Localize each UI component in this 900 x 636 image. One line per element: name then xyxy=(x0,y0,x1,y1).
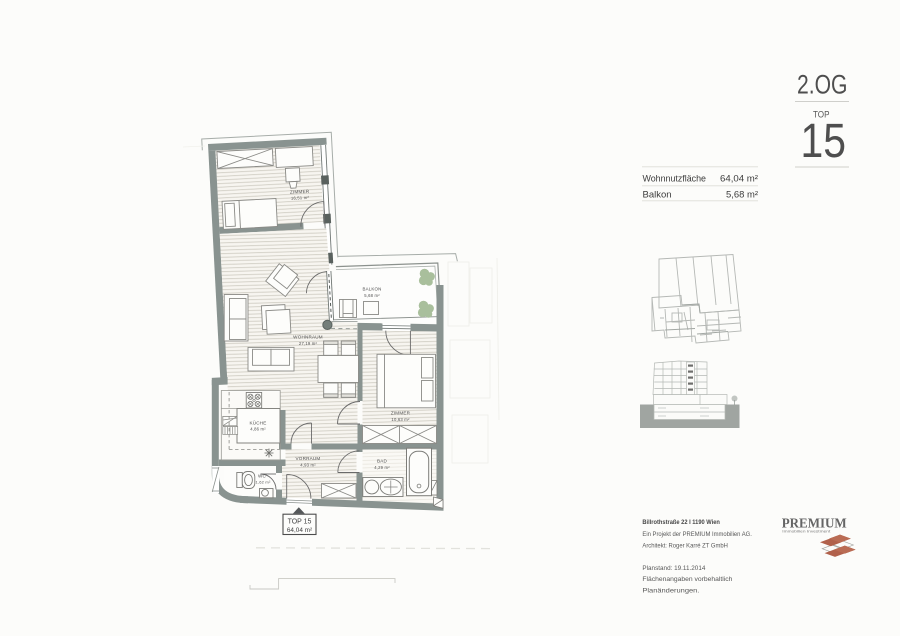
svg-text:27,19 m²: 27,19 m² xyxy=(299,341,318,346)
svg-text:VORRAUM: VORRAUM xyxy=(296,456,321,461)
svg-text:WOHNRAUM: WOHNRAUM xyxy=(293,335,323,340)
svg-text:Architekt: Roger Karré ZT GmbH: Architekt: Roger Karré ZT GmbH xyxy=(642,543,728,550)
svg-text:4,86 m²: 4,86 m² xyxy=(250,427,266,432)
svg-text:Planstand: 19.11.2014: Planstand: 19.11.2014 xyxy=(642,565,705,572)
svg-text:Ein Projekt der PREMIUM Immobi: Ein Projekt der PREMIUM Immobilien AG. xyxy=(642,531,752,538)
svg-text:5,68 m²: 5,68 m² xyxy=(364,293,380,298)
svg-text:TOP 15: TOP 15 xyxy=(288,518,312,525)
svg-text:WC: WC xyxy=(258,474,267,479)
svg-text:15: 15 xyxy=(801,115,847,168)
svg-text:Immobilien Investment: Immobilien Investment xyxy=(782,529,831,534)
svg-text:5,68 m²: 5,68 m² xyxy=(726,189,758,200)
svg-text:4,29 m²: 4,29 m² xyxy=(374,465,390,470)
svg-text:16,51 m²: 16,51 m² xyxy=(291,195,310,201)
svg-text:Balkon: Balkon xyxy=(643,189,672,200)
svg-text:64,04 m²: 64,04 m² xyxy=(287,527,312,534)
svg-text:ZIMMER: ZIMMER xyxy=(290,189,310,195)
svg-text:Planänderungen.: Planänderungen. xyxy=(642,587,699,594)
svg-text:BALKON: BALKON xyxy=(362,287,381,292)
svg-text:Flächenangaben vorbehaltlich: Flächenangaben vorbehaltlich xyxy=(642,576,732,583)
svg-text:Billrothstraße 22 I 1190 Wien: Billrothstraße 22 I 1190 Wien xyxy=(642,519,720,526)
svg-text:10,63 m²: 10,63 m² xyxy=(391,417,410,422)
svg-text:KÜCHE: KÜCHE xyxy=(249,420,266,426)
svg-text:64,04 m²: 64,04 m² xyxy=(720,173,758,184)
svg-text:ZIMMER: ZIMMER xyxy=(391,411,411,416)
svg-text:1,62 m²: 1,62 m² xyxy=(256,480,271,485)
svg-text:4,93 m²: 4,93 m² xyxy=(300,463,316,468)
svg-text:2.OG: 2.OG xyxy=(797,70,848,100)
svg-text:Wohnnutzfläche: Wohnnutzfläche xyxy=(643,173,707,184)
svg-text:BAD: BAD xyxy=(377,459,388,464)
